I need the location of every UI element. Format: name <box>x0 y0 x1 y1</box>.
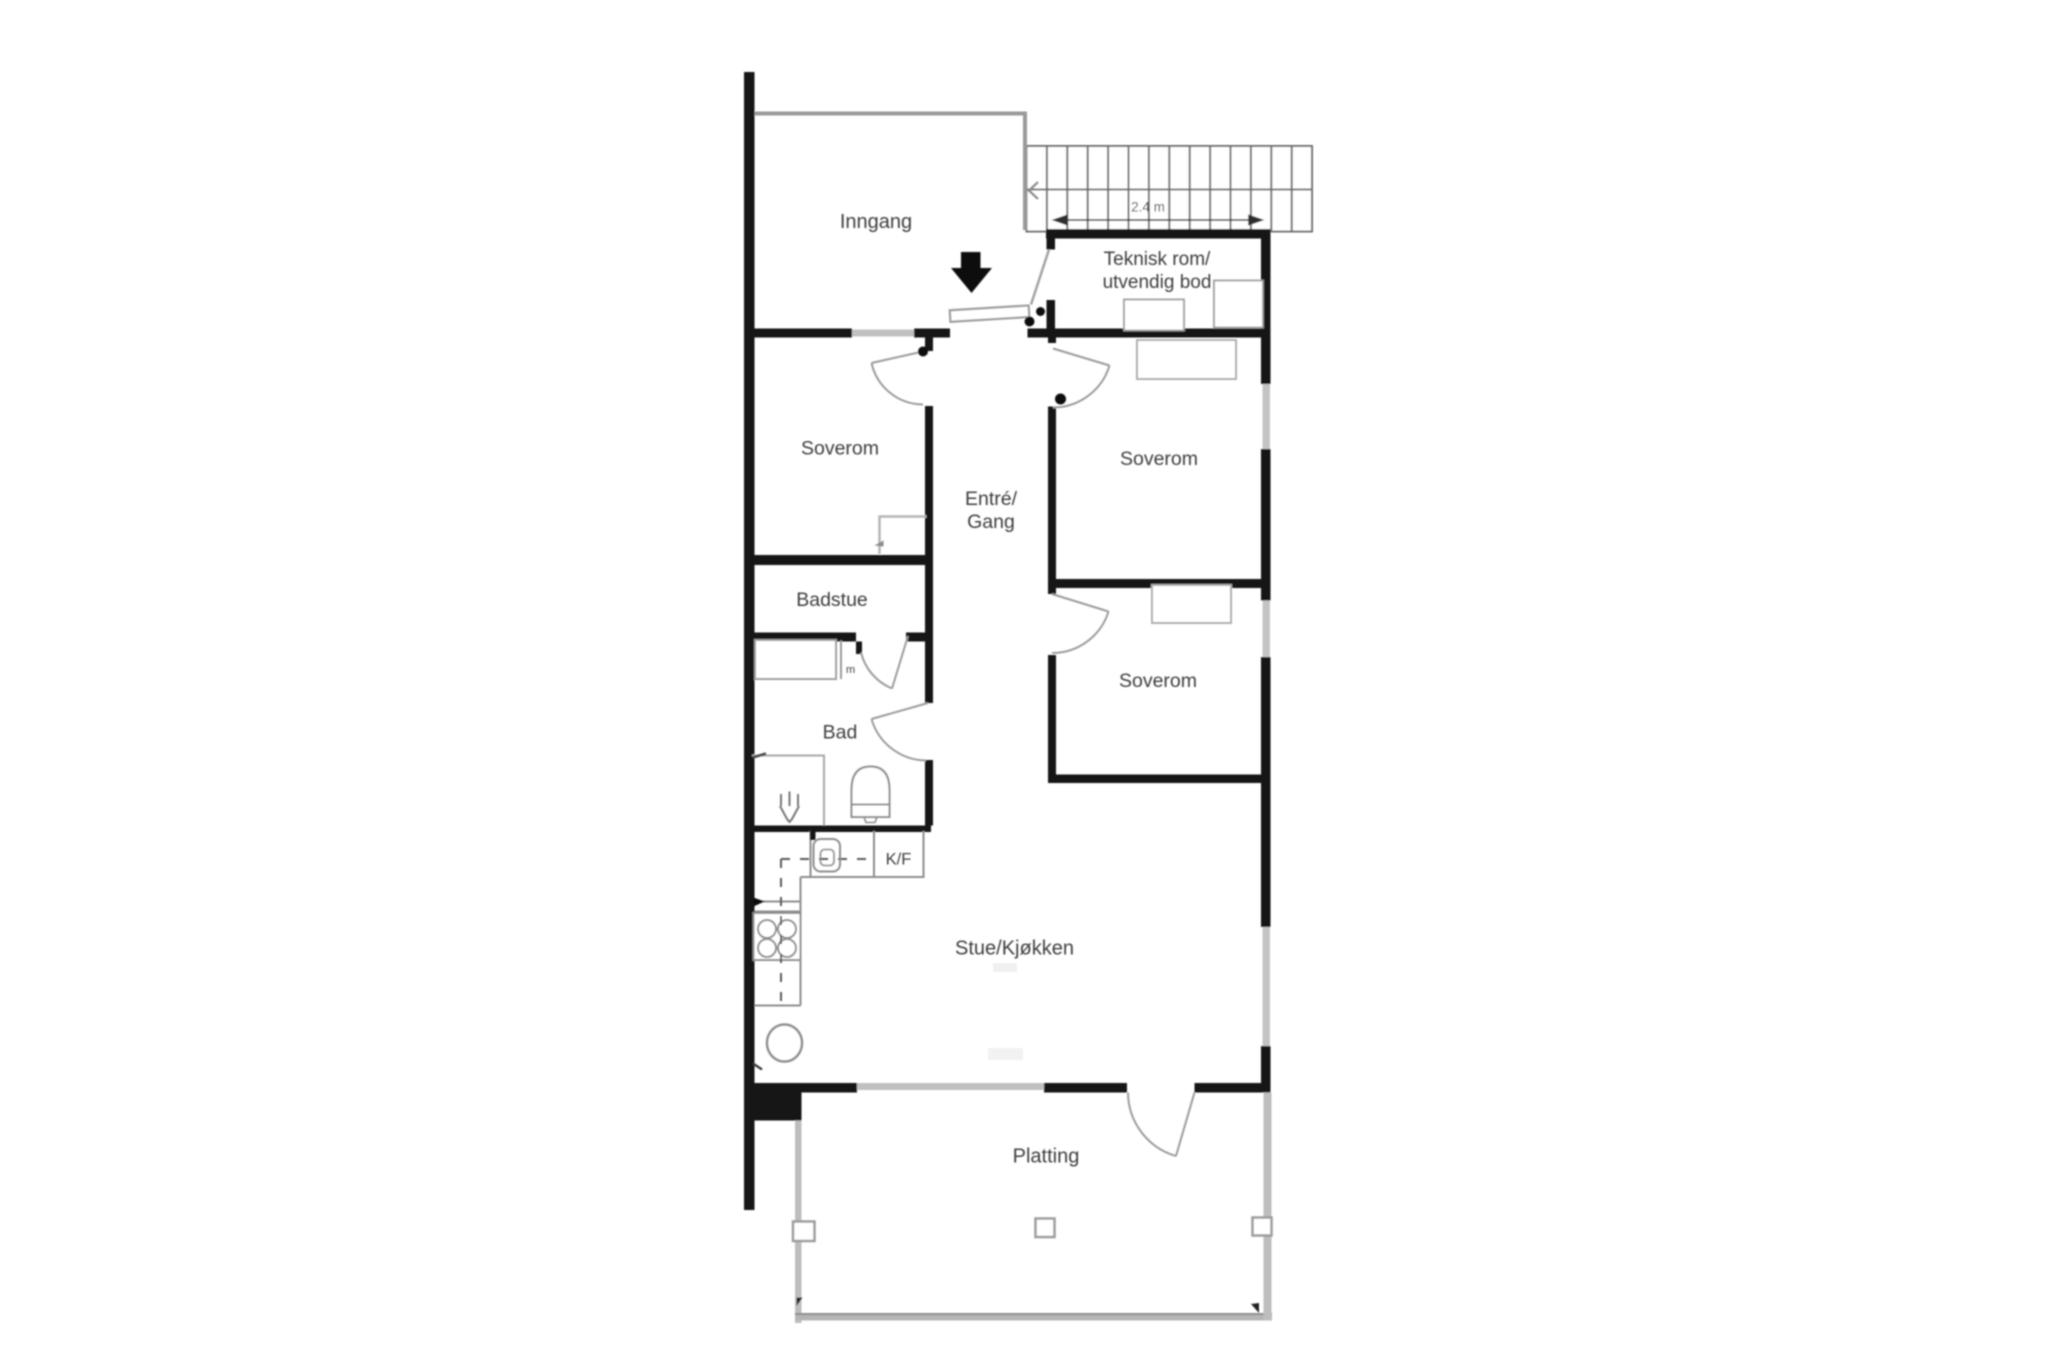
svg-text:Badstue: Badstue <box>796 589 868 611</box>
svg-text:K/F: K/F <box>886 851 912 869</box>
svg-text:utvendig bod: utvendig bod <box>1103 272 1212 293</box>
svg-text:Inngang: Inngang <box>840 211 912 233</box>
svg-text:Stue/Kjøkken: Stue/Kjøkken <box>955 938 1074 960</box>
svg-text:m: m <box>846 664 855 676</box>
svg-text:Soverom: Soverom <box>1120 448 1198 470</box>
svg-text:Soverom: Soverom <box>801 438 879 460</box>
svg-text:Teknisk rom/: Teknisk rom/ <box>1104 249 1211 270</box>
svg-text:2.4 m: 2.4 m <box>1131 200 1165 215</box>
svg-text:Bad: Bad <box>823 722 858 744</box>
svg-text:Gang: Gang <box>967 511 1015 533</box>
svg-text:Entré/: Entré/ <box>965 488 1018 510</box>
svg-text:Soverom: Soverom <box>1119 670 1197 692</box>
svg-text:Platting: Platting <box>1013 1146 1080 1168</box>
